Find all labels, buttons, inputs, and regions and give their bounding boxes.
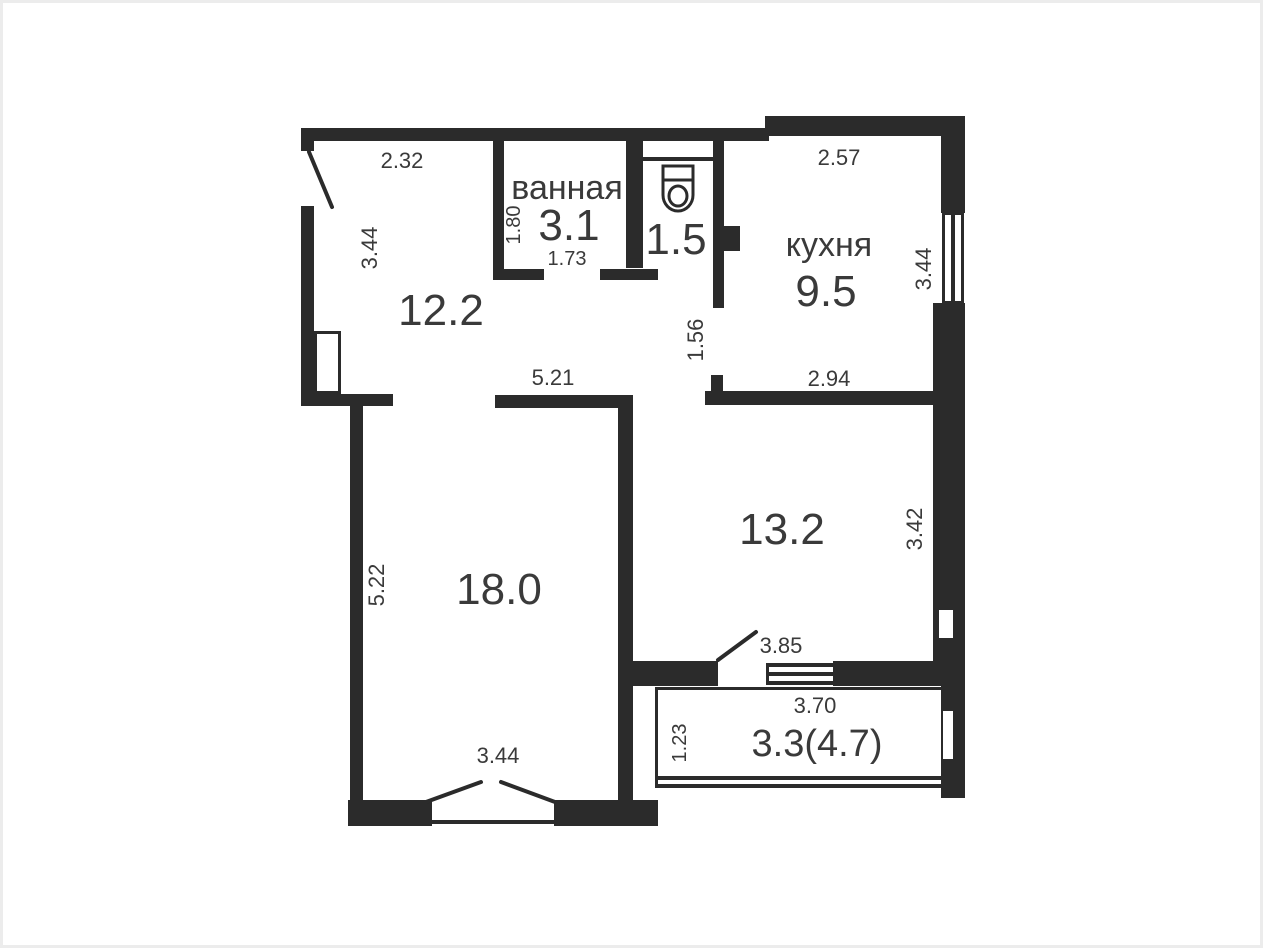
living-dim-top: 5.21 xyxy=(532,365,575,390)
living-area: 18.0 xyxy=(456,565,542,614)
wall-bath-toilet-divider xyxy=(626,141,643,268)
toilet-area: 1.5 xyxy=(645,215,706,264)
hallway-niche-inner xyxy=(317,334,338,391)
living-dim-bottom: 3.44 xyxy=(477,743,520,768)
balcony-area: 3.3(4.7) xyxy=(752,723,883,765)
wall-kitchen-top xyxy=(765,116,965,136)
room-window-pane-1 xyxy=(769,667,833,672)
wall-right-middle xyxy=(933,303,965,661)
kitchen-dim-bottom: 2.94 xyxy=(808,366,851,391)
floor-plan: 2.32 3.44 12.2 ванная 3.1 1.80 1.73 1.5 … xyxy=(3,3,1263,948)
living-dim-left: 5.22 xyxy=(364,564,389,607)
hallway-dim-left: 3.44 xyxy=(357,227,382,270)
room-dim-door: 3.85 xyxy=(760,633,803,658)
bathroom-area: 3.1 xyxy=(538,201,599,250)
toilet-seat xyxy=(669,186,687,206)
french-door-right-leaf xyxy=(501,782,555,802)
balcony-door-swing xyxy=(718,632,756,660)
wall-room-bottom-left xyxy=(633,661,718,686)
balcony-dim-left: 1.23 xyxy=(669,724,691,763)
hallway-dim-top: 2.32 xyxy=(381,148,424,173)
kitchen-window-pane-1 xyxy=(945,215,951,301)
bathroom-dim-bottom: 1.73 xyxy=(548,248,587,270)
kitchen-dim-left: 1.56 xyxy=(683,319,708,362)
kitchen-dim-right: 3.44 xyxy=(911,248,936,291)
wall-notch-balcony xyxy=(943,711,953,759)
kitchen-window xyxy=(942,212,964,304)
room-area: 13.2 xyxy=(739,505,825,554)
room-dim-right: 3.42 xyxy=(902,508,927,551)
wall-living-bottom-left xyxy=(348,800,432,826)
toilet-icon xyxy=(663,166,693,211)
wall-hall-bottom xyxy=(301,394,393,406)
french-door-threshold xyxy=(432,820,554,824)
room-window-frame xyxy=(766,663,836,685)
wall-top-main xyxy=(301,128,769,141)
wall-room-bottom-right xyxy=(833,661,941,686)
bathroom-dim-left: 1.80 xyxy=(503,206,525,245)
balcony-glazing-line-2 xyxy=(658,784,941,788)
wall-left-corner xyxy=(301,128,314,151)
balcony-left-line xyxy=(655,687,658,788)
wall-kitchen-bottom xyxy=(705,391,965,405)
balcony-slab-line xyxy=(655,687,941,690)
french-door-left-leaf xyxy=(426,782,481,802)
room-balcony-window xyxy=(766,663,836,685)
kitchen-area: 9.5 xyxy=(795,267,856,316)
balcony-dim-top: 3.70 xyxy=(794,693,837,718)
walls xyxy=(301,116,965,826)
kitchen-window-pane-2 xyxy=(955,215,961,301)
wall-bathroom-bottom xyxy=(493,269,544,280)
wall-left-main xyxy=(301,206,314,395)
hallway-area: 12.2 xyxy=(398,286,484,335)
wall-right-upper xyxy=(941,116,965,213)
wall-living-right xyxy=(618,395,633,826)
toilet-top-line xyxy=(643,157,713,161)
kitchen-name: кухня xyxy=(786,226,872,264)
entry-door-swing xyxy=(309,152,332,207)
wall-kitchen-left-foot xyxy=(713,226,740,251)
wall-notch-upper xyxy=(939,610,953,638)
wall-toilet-bottom xyxy=(600,269,658,280)
floor-plan-page: 2.32 3.44 12.2 ванная 3.1 1.80 1.73 1.5 … xyxy=(0,0,1263,948)
kitchen-dim-top: 2.57 xyxy=(818,145,861,170)
wall-living-bottom-right xyxy=(554,800,658,826)
wall-living-top xyxy=(495,395,633,408)
room-window-pane-2 xyxy=(769,676,833,681)
wall-kitchen-left-upper xyxy=(713,136,724,308)
wall-living-left xyxy=(350,394,363,826)
balcony-glazing-line-1 xyxy=(658,776,941,780)
